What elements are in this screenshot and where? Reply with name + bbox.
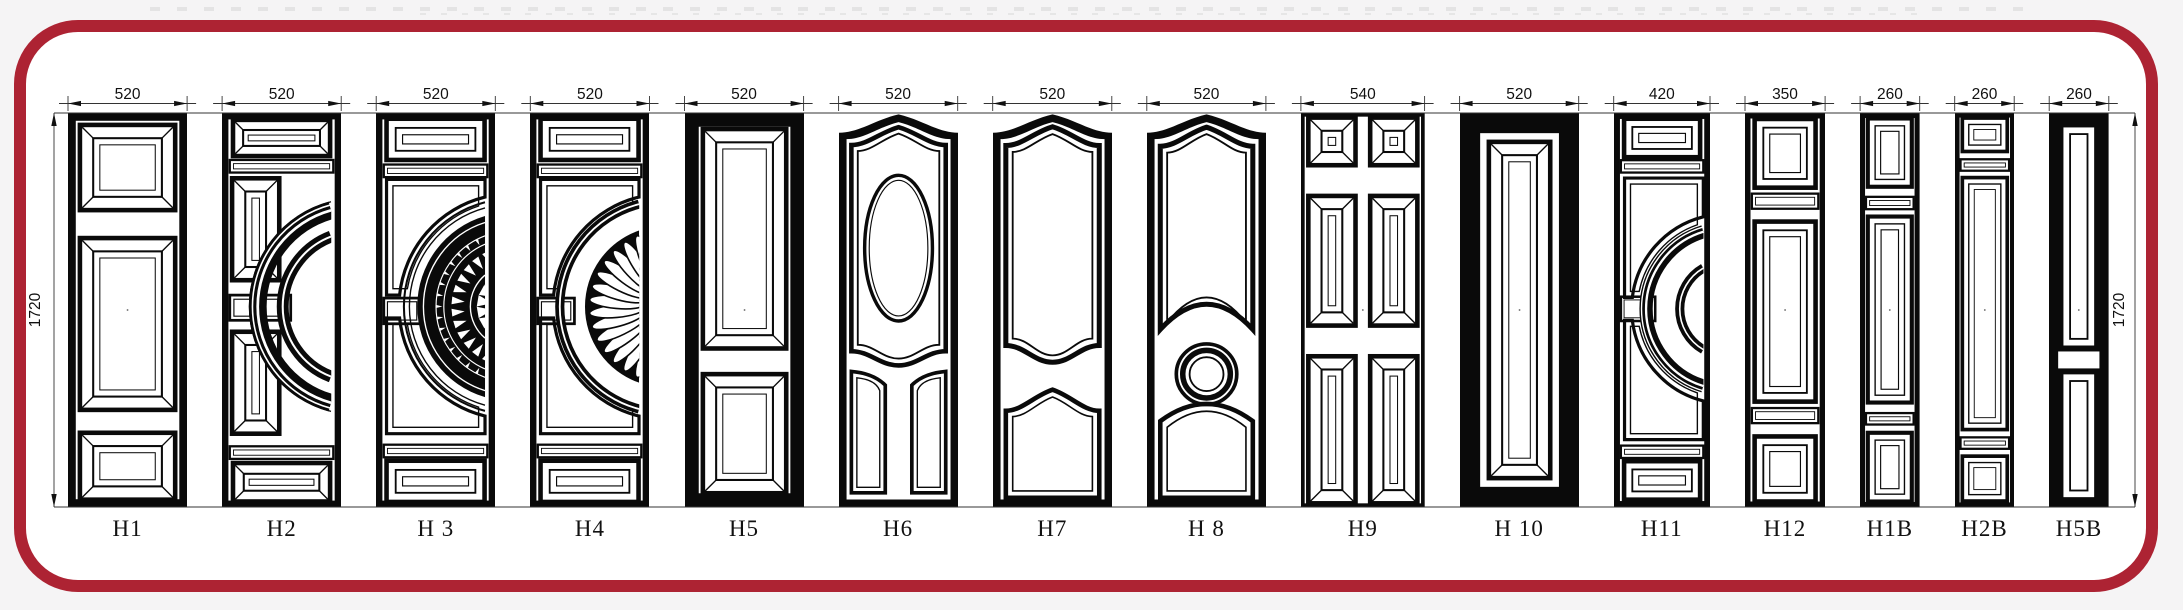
door-label: H6 — [853, 516, 943, 542]
door-label: H 3 — [391, 516, 481, 542]
door-label: H5 — [699, 516, 789, 542]
door-label: H4 — [545, 516, 635, 542]
door-label: H7 — [1007, 516, 1097, 542]
door-label: H2 — [237, 516, 327, 542]
door-label: H9 — [1318, 516, 1408, 542]
door-label: H2B — [1940, 516, 2030, 542]
labels-layer: H1H2H 3H4H5H6H7H 8H9H 10H11H12H1BH2BH5B — [0, 0, 2183, 610]
door-label: H11 — [1617, 516, 1707, 542]
door-label: H 10 — [1474, 516, 1564, 542]
door-label: H12 — [1740, 516, 1830, 542]
door-label: H 8 — [1161, 516, 1251, 542]
drawing-canvas: 1720172052052052052052052052052054052042… — [0, 0, 2183, 610]
door-label: H1 — [83, 516, 173, 542]
door-label: H5B — [2034, 516, 2124, 542]
door-label: H1B — [1845, 516, 1935, 542]
